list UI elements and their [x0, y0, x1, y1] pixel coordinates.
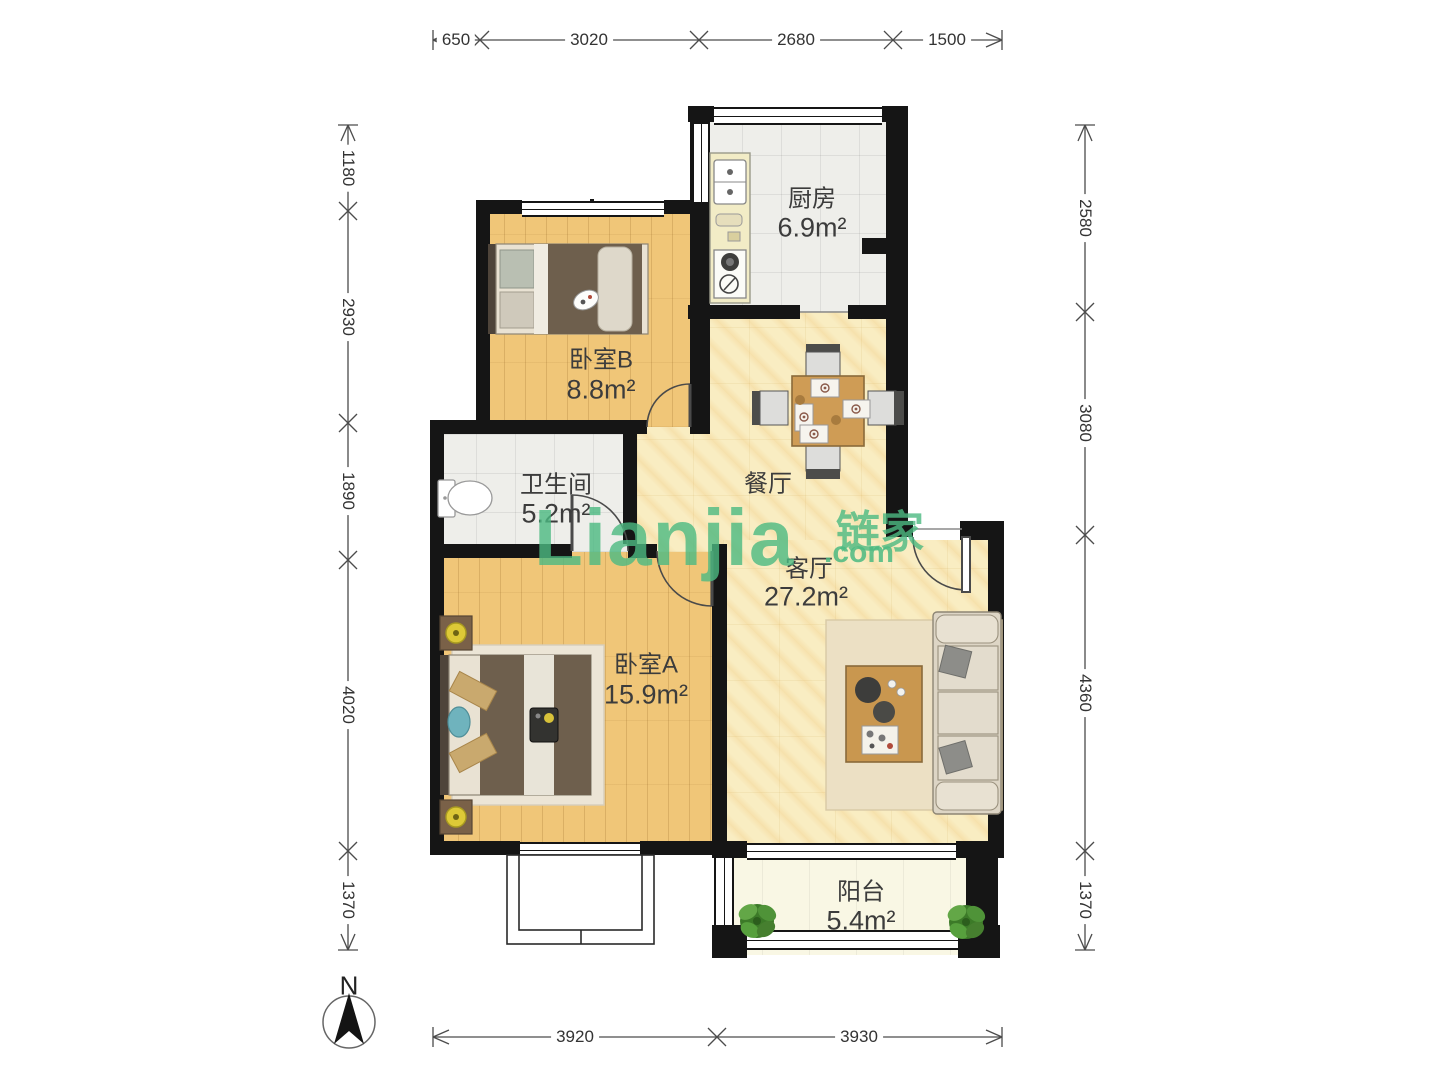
floorplan-page: Lianjia 链家 .com 厨房 6.9m² 卧室B 8.8m² 卫生间 5… [0, 0, 1440, 1080]
bedroom-a-label: 卧室A [614, 645, 678, 680]
wall-segment [886, 521, 913, 537]
dim-right-1370: 1370 [1075, 876, 1095, 924]
living-area: 27.2m² [764, 582, 848, 613]
wall-segment [430, 420, 647, 434]
dim-top-1500: 1500 [923, 30, 971, 50]
bathroom-label: 卫生间 [520, 465, 592, 500]
wall-segment [886, 319, 908, 521]
wall-segment [623, 434, 637, 544]
wall-segment [966, 855, 998, 933]
dim-left-4020: 4020 [338, 681, 358, 729]
wall-segment [862, 238, 886, 254]
wall-segment [430, 420, 444, 855]
dim-left-1890: 1890 [338, 467, 358, 515]
dim-bottom-3930: 3930 [835, 1027, 883, 1047]
bedroom-b-label: 卧室B [569, 340, 633, 375]
wall-segment [430, 841, 520, 855]
balcony-area: 5.4m² [826, 906, 895, 937]
dim-top-3020: 3020 [565, 30, 613, 50]
living-label: 客厅 [785, 549, 833, 584]
kitchen-area: 6.9m² [777, 213, 846, 244]
dim-top-650: 650 [437, 30, 475, 50]
wall-segment [664, 200, 706, 214]
bedroom-b-area: 8.8m² [566, 375, 635, 406]
wall-segment [712, 925, 747, 958]
wall-segment [886, 106, 908, 319]
wall-segment [430, 544, 572, 558]
wall-segment [688, 305, 800, 319]
wall-segment [958, 925, 1000, 958]
kitchen-side-window [692, 124, 710, 202]
balcony-label: 阳台 [837, 872, 885, 907]
dim-bottom-3920: 3920 [551, 1027, 599, 1047]
compass-north-label: N [340, 971, 359, 1002]
bay-window-outline [507, 855, 654, 944]
wall-segment [628, 544, 657, 558]
dim-right-4360: 4360 [1075, 669, 1095, 717]
balcony-left-rail [714, 858, 734, 925]
dim-left-1370: 1370 [338, 876, 358, 924]
dim-right-3080: 3080 [1075, 399, 1095, 447]
bedroom-a-area: 15.9m² [604, 680, 688, 711]
wall-segment [712, 841, 747, 858]
kitchen-window [714, 107, 882, 125]
wall-segment [476, 200, 490, 434]
kitchen-label: 厨房 [788, 179, 836, 214]
wall-segment [988, 521, 1004, 858]
dim-right-2580: 2580 [1075, 194, 1095, 242]
dim-left-1180: 1180 [338, 145, 358, 192]
wall-segment [712, 544, 727, 849]
dim-top-2680: 2680 [772, 30, 820, 50]
bedroom-a-bay-window [520, 842, 640, 858]
dim-left-2930: 2930 [338, 293, 358, 341]
wall-segment [848, 305, 908, 319]
bedroom-b-window [522, 201, 664, 217]
balcony-sliding-door [747, 843, 956, 860]
bathroom-area: 5.2m² [521, 499, 590, 530]
dining-label: 餐厅 [744, 464, 792, 499]
